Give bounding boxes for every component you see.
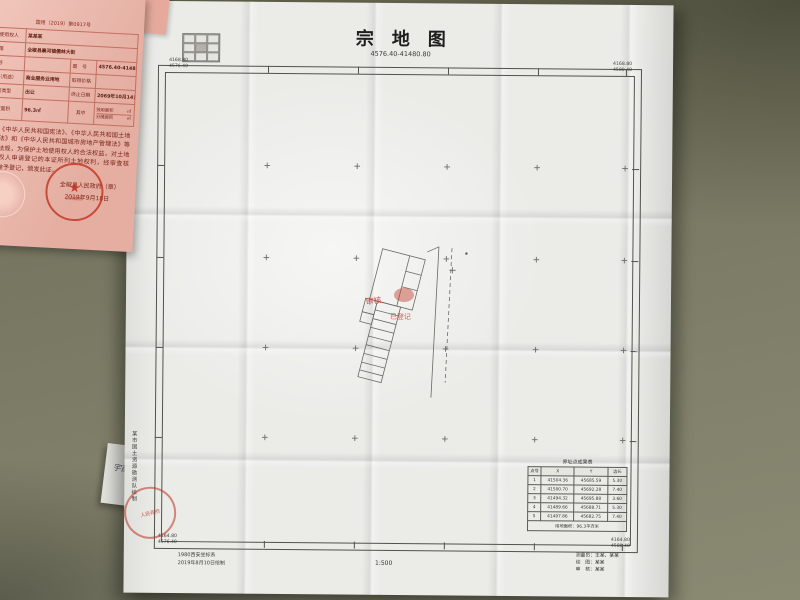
frame-tick (358, 67, 359, 74)
corner-coordinate-bottom-right: 4164.804580.40 (590, 538, 630, 550)
corner-coordinate-top-left: 4168.804576.40 (169, 58, 188, 70)
map-scale: 1:500 (354, 560, 414, 568)
map-basis-notes: 1980西安坐标系 2019年8月10日绘制 (178, 552, 225, 567)
frame-tick (631, 351, 638, 352)
frame-tick (538, 68, 539, 75)
frame-tick (268, 66, 269, 73)
frame-tick (626, 69, 627, 76)
seal-text: 人民政府 (66, 196, 82, 203)
frame-tick (155, 437, 162, 438)
seal-star-icon: ★ (68, 182, 80, 196)
frame-tick (444, 542, 445, 549)
certificate-table: 土地使用权人 某某某 坐 落 全椒县襄河镇儒林大街 地 号 图 号 4576.4… (0, 26, 138, 127)
frame-tick (264, 541, 265, 548)
boundary-point-table: 界址点成果表 点号 X Y 边长 141504.36 45685.595.30 … (527, 458, 628, 532)
boundary-table-title: 界址点成果表 (528, 458, 628, 466)
frame-tick (354, 542, 355, 549)
frame-tick (622, 544, 623, 551)
map-sheet: 宗 地 图 4576.40-41480.80 4168.804576.40 41… (123, 1, 673, 598)
map-credits: 测量员：王某、某某 绘 图：某某 审 核：某某 (576, 554, 619, 575)
frame-tick (448, 67, 449, 74)
red-stamp-smudge (394, 288, 414, 302)
survey-point (465, 252, 467, 254)
frame-tick (157, 165, 164, 166)
frame-tick (632, 169, 639, 170)
frame-tick (156, 257, 163, 258)
area-breakdown: 独用面积㎡ 分摊面积㎡ (96, 107, 132, 122)
red-stamp-1: 审核 (365, 295, 382, 307)
grid-cross: + (448, 265, 456, 276)
frame-tick (630, 441, 637, 442)
photo-of-documents-on-desk: 宇亩 宗 地 图 4576.40-41480.80 4168.804576.40… (0, 0, 800, 600)
table-footer-row: 用地面积：96.3平方米 (527, 521, 626, 532)
seal-text: 人民政府 (140, 507, 161, 518)
frame-tick (631, 261, 638, 262)
current-sheet-cell (195, 43, 207, 52)
red-stamp-2: 已登记 (390, 312, 411, 321)
land-use-certificate: 国用（2019）第0917号 土地使用权人 某某某 坐 落 全椒县襄河镇儒林大街… (0, 0, 146, 252)
frame-tick (534, 543, 535, 550)
frame-tick (156, 347, 163, 348)
